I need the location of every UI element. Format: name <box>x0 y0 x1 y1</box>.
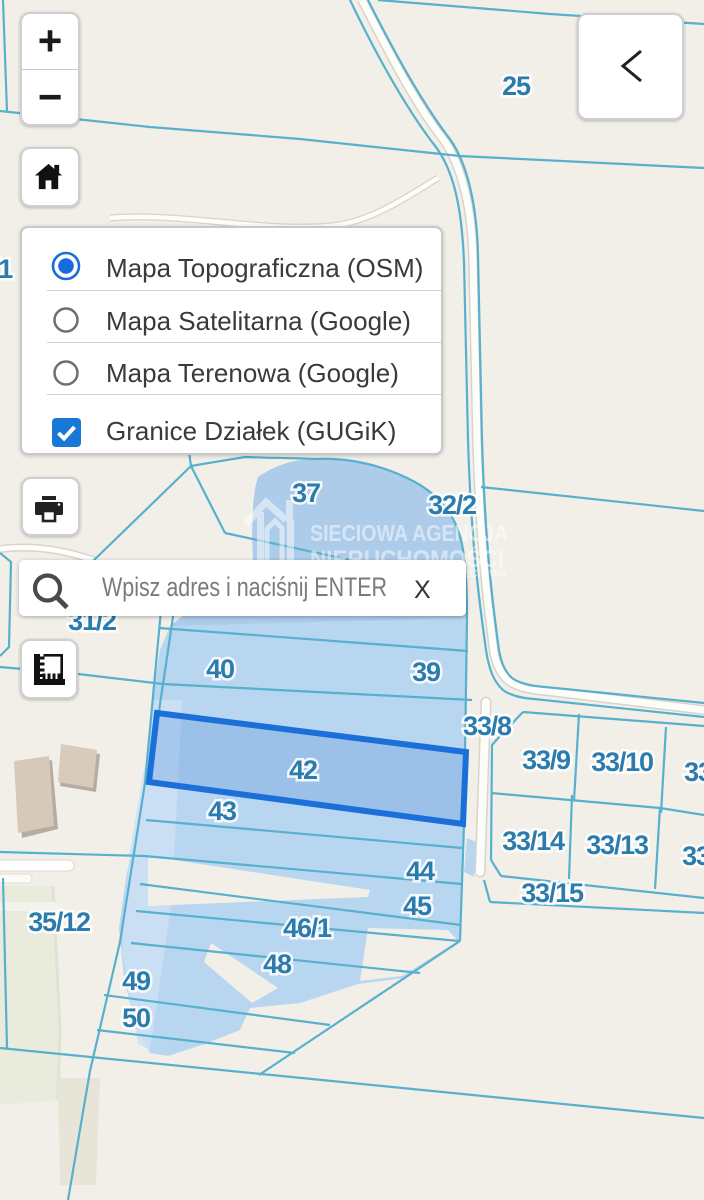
svg-text:43: 43 <box>208 796 237 826</box>
svg-text:33/13: 33/13 <box>586 830 649 860</box>
svg-text:33/8: 33/8 <box>463 711 512 741</box>
svg-text:33/1: 33/1 <box>684 757 704 787</box>
svg-text:25: 25 <box>502 71 531 101</box>
svg-text:39: 39 <box>412 657 441 687</box>
svg-text:42: 42 <box>289 755 317 785</box>
svg-text:32/2: 32/2 <box>428 490 476 520</box>
svg-text:40: 40 <box>206 654 234 684</box>
svg-text:50: 50 <box>122 1003 150 1033</box>
svg-text:49: 49 <box>122 966 151 996</box>
svg-text:48: 48 <box>263 949 292 979</box>
svg-text:33/9: 33/9 <box>522 745 571 775</box>
svg-text:SIECIOWA AGENCJA: SIECIOWA AGENCJA <box>310 520 508 546</box>
svg-text:33/15: 33/15 <box>521 878 584 908</box>
svg-text:35/12: 35/12 <box>28 907 90 937</box>
svg-text:46/1: 46/1 <box>283 913 332 943</box>
svg-text:45: 45 <box>403 891 432 921</box>
svg-text:33/14: 33/14 <box>502 826 565 856</box>
svg-text:/1: /1 <box>0 254 13 284</box>
svg-text:44: 44 <box>406 856 435 886</box>
svg-text:33/1: 33/1 <box>682 841 704 871</box>
svg-text:33/10: 33/10 <box>591 747 653 777</box>
svg-text:Wpisz adres i naciśnij ENTER: Wpisz adres i naciśnij ENTER <box>102 572 387 602</box>
svg-text:37: 37 <box>292 478 320 508</box>
